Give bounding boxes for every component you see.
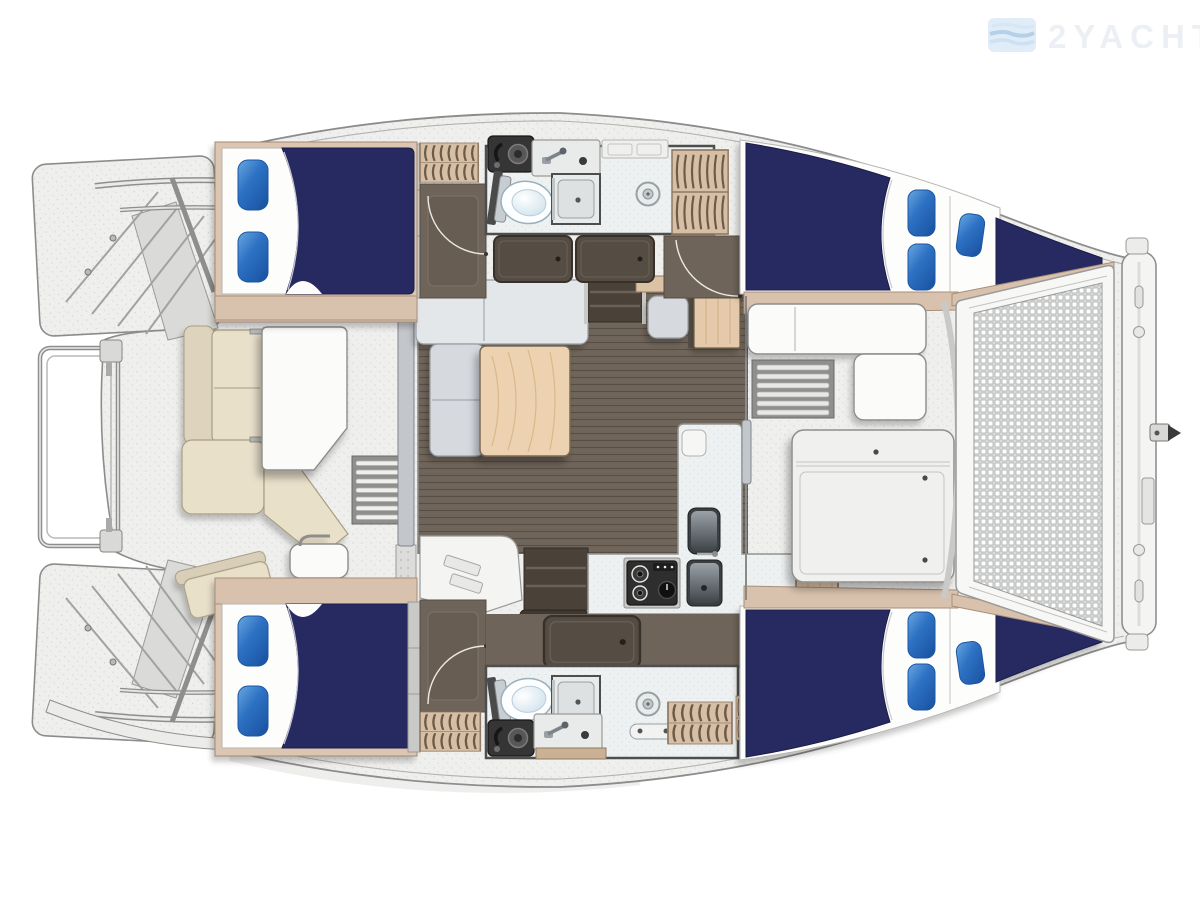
fwd-bench <box>748 304 926 354</box>
bow-crossbeam <box>1122 238 1181 650</box>
watermark-text: 2YACHTS <box>1048 18 1200 55</box>
flag-logo-icon <box>988 18 1036 52</box>
nav-stool <box>648 296 688 338</box>
beam-fitting <box>1134 327 1145 338</box>
port-aft-cabin-floor <box>420 184 488 298</box>
shower-drain-icon <box>637 183 660 206</box>
settee-back <box>184 326 214 444</box>
fwd-lounge <box>792 430 954 582</box>
berth-spread <box>282 604 414 748</box>
vanity-counter <box>534 714 602 750</box>
companionway-steps-stbd <box>408 602 420 752</box>
wardrobe <box>544 616 640 668</box>
fwd-door <box>742 420 751 484</box>
berth-shelf <box>215 296 417 320</box>
pillow <box>908 244 935 290</box>
rail-mount <box>100 340 122 362</box>
hanging-locker <box>420 143 478 182</box>
berth-shelf <box>744 586 958 608</box>
shower-icon <box>552 174 600 224</box>
settee-corner-seat <box>182 440 264 514</box>
stbd-aft-berth <box>215 578 417 756</box>
pillow <box>908 190 935 236</box>
stove <box>624 558 680 608</box>
pillow <box>238 232 268 282</box>
wardrobe <box>494 236 572 282</box>
fwd-vent <box>752 360 834 418</box>
shower-drain-icon <box>637 693 660 716</box>
port-fwd-cabin-floor <box>664 236 748 298</box>
vanity-counter <box>532 140 600 176</box>
beam-bracket <box>1142 478 1154 524</box>
pillow <box>238 686 268 736</box>
trampoline-mesh <box>974 283 1102 626</box>
beam-fitting <box>1135 580 1143 602</box>
galley-steps <box>524 548 588 610</box>
watermark: 2YACHTS <box>988 18 1200 55</box>
port-forward-berth <box>740 140 1102 294</box>
berth-spread <box>282 148 414 294</box>
rail-mount <box>100 530 122 552</box>
hanging-locker <box>668 702 732 744</box>
fwd-seat <box>854 354 926 420</box>
bathroom-sink-icon <box>488 136 534 172</box>
berth-headboard-shelf <box>215 578 417 604</box>
pillow <box>238 160 268 210</box>
port-aft-berth <box>215 142 417 322</box>
beam-fitting <box>1135 286 1143 308</box>
nav-cabinet <box>694 290 740 348</box>
wardrobe <box>576 236 654 282</box>
port-hull <box>215 136 1114 322</box>
salon-sliding-door <box>398 290 414 546</box>
forestay-fitting <box>1150 424 1181 441</box>
stbd-aft-cabin-floor <box>420 600 488 712</box>
settee-seat <box>212 330 262 442</box>
beam-end-cap <box>1126 238 1148 254</box>
beam-fitting <box>1134 545 1145 556</box>
yacht-floor-plan: 2YACHTS <box>0 0 1200 900</box>
pillow <box>908 664 935 710</box>
bathroom-sink-icon <box>488 720 534 756</box>
hanging-locker <box>420 712 480 751</box>
salon-table <box>480 346 570 456</box>
stbd-forward-berth <box>740 606 1102 760</box>
deck-fitting <box>110 235 116 241</box>
pillow <box>908 612 935 658</box>
pillow <box>238 616 268 666</box>
beam-end-cap <box>1126 634 1148 650</box>
trampoline <box>956 266 1114 643</box>
hanging-locker <box>672 150 728 234</box>
bow-area <box>956 238 1181 650</box>
counter-pad <box>682 430 706 456</box>
